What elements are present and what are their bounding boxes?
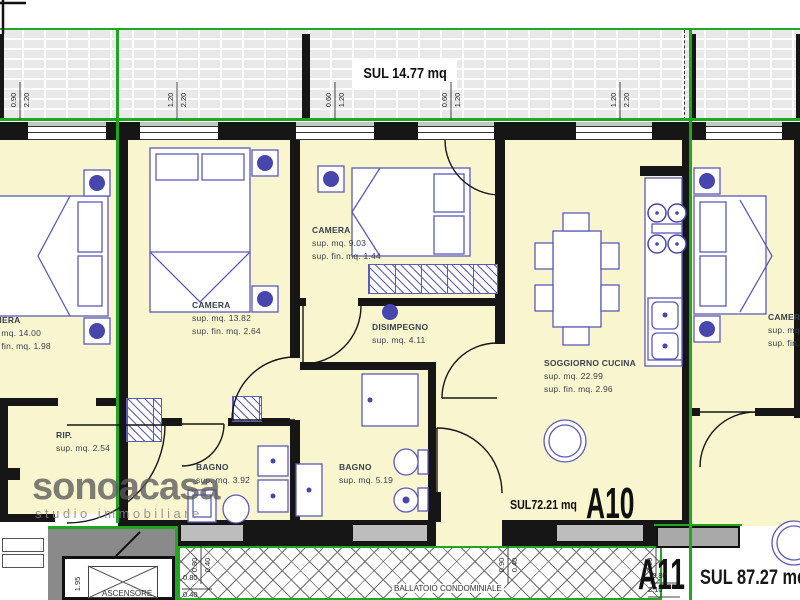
room-name: BAGNO	[339, 461, 393, 474]
burner-dot	[675, 211, 679, 215]
door-soggiorno	[442, 343, 497, 398]
knob	[271, 459, 276, 464]
toilet-tank	[418, 450, 428, 474]
watermark-tagline: studio immobiliare	[35, 506, 203, 521]
toilet	[394, 449, 418, 475]
lamp	[257, 155, 273, 171]
brace-mark	[116, 532, 140, 556]
dimension-label: 2.20	[623, 93, 631, 108]
room-label: CAMERAsup. mq. 9.03sup. fin. mq. 1.44	[312, 224, 381, 263]
knob	[271, 494, 276, 499]
watermark-brand: sonoacasa	[32, 468, 219, 506]
pillow	[78, 202, 102, 252]
room-label: CAMERAsup. mq. 13.82sup. fin. mq. 2.64	[192, 299, 261, 338]
room-name: CAMERA	[312, 224, 381, 237]
room-name: CAMERA	[0, 314, 51, 327]
room-label: DISIMPEGNOsup. mq. 4.11	[372, 321, 428, 347]
dimension-label: 1.20	[167, 93, 175, 108]
chair	[563, 213, 589, 231]
chair	[535, 243, 553, 269]
drain	[663, 313, 668, 318]
dimension-label: 0.90	[498, 558, 506, 573]
room-name: SOGGIORNO CUCINA	[544, 357, 636, 370]
lamp	[323, 171, 339, 187]
pillow	[434, 216, 464, 254]
room-label: CAMERAsup. mq. 14.00sup. fin. mq. 1.98	[0, 314, 51, 353]
pillow	[434, 174, 464, 212]
room-area-line: sup. mq. 22.99	[544, 370, 636, 383]
dimension-label: 1.95	[74, 577, 82, 592]
room-name: CAMERA	[768, 311, 800, 324]
ballatoio-label: BALLATOIO CONDOMINIALE	[392, 584, 504, 593]
pillow	[700, 202, 726, 252]
burner-dot	[655, 242, 659, 246]
chair	[563, 327, 589, 345]
room-label: SOGGIORNO CUCINAsup. mq. 22.99sup. fin. …	[544, 357, 636, 396]
lamp	[89, 175, 105, 191]
room-area-line: sup. mq. 4.11	[372, 334, 428, 347]
floor-plan-canvas: SUL 14.77 mq	[0, 0, 800, 600]
room-area-line: sup. fin. mq. 2.64	[192, 325, 261, 338]
pillow	[156, 154, 198, 180]
dimension-label: 0.60	[325, 93, 333, 108]
room-area-line: sup. mq. 2.54	[56, 442, 110, 455]
dimension-label: 0.40	[204, 558, 212, 573]
room-area-line: sup. fin. mq. 1.98	[0, 340, 51, 353]
knob	[368, 398, 373, 403]
bidet-tap	[418, 488, 428, 511]
pillow	[700, 256, 726, 306]
dimension-label: 2.10	[648, 586, 663, 594]
dimension-label: 0.40	[511, 558, 519, 573]
room-area-line: sup. fin.	[768, 337, 800, 350]
dimension-label: 0.60	[441, 93, 449, 108]
dimension-label: 2.20	[23, 93, 31, 108]
apartment-id-label: A10	[586, 482, 634, 526]
ascensore-label: ASCENSORE	[100, 589, 154, 598]
room-area-line: sup. fin. mq. 1.44	[312, 250, 381, 263]
room-label: CAMERAsup. mq.sup. fin.	[768, 311, 800, 350]
door-bagno1	[182, 424, 224, 466]
toilet	[223, 495, 249, 523]
door-camera2	[303, 306, 361, 364]
room-area-line: sup. mq. 14.00	[0, 327, 51, 340]
room-name: RIP.	[56, 429, 110, 442]
chair	[601, 285, 619, 311]
door-leaf	[433, 492, 441, 522]
room-label: BAGNOsup. mq. 5.19	[339, 461, 393, 487]
knob	[307, 488, 312, 493]
room-area-line: sup. mq. 9.03	[312, 237, 381, 250]
pillow	[78, 256, 102, 306]
dining-table	[553, 231, 601, 327]
dimension-label: 0.80	[652, 572, 667, 580]
drain	[663, 344, 668, 349]
burner-dot	[675, 242, 679, 246]
dimension-label: 1.20	[610, 93, 618, 108]
room-area-line: sup. mq. 13.82	[192, 312, 261, 325]
apartment-area-label: SUL72.21 mq	[510, 497, 577, 512]
room-area-line: sup. fin. mq. 2.96	[544, 383, 636, 396]
dimension-label: 0.90	[10, 93, 18, 108]
kitchen-cabinet	[640, 166, 684, 176]
bidet-drain	[403, 497, 410, 504]
room-name: CAMERA	[192, 299, 261, 312]
room-area-line: sup. mq.	[768, 324, 800, 337]
corner-mark	[0, 0, 26, 34]
dimension-label: 2.20	[180, 93, 188, 108]
lamp	[699, 173, 715, 189]
dimension-label: 1.20	[454, 93, 462, 108]
dimension-label: 0.80	[183, 574, 198, 582]
dimension-label: 0.80	[191, 558, 199, 573]
room-label: RIP.sup. mq. 2.54	[56, 429, 110, 455]
lamp	[89, 323, 105, 339]
burner-dot	[655, 211, 659, 215]
room-name: DISIMPEGNO	[372, 321, 428, 334]
door-entrance	[437, 428, 502, 493]
room-area-line: sup. mq. 5.19	[339, 474, 393, 487]
chair	[601, 243, 619, 269]
neighbor-area-label: SUL 87.27 mq	[700, 566, 800, 590]
lamp	[699, 321, 715, 337]
door-camera1	[232, 357, 295, 420]
lamp	[382, 304, 398, 320]
round-table	[544, 420, 586, 462]
pillow	[202, 154, 244, 180]
chair	[535, 285, 553, 311]
dimension-label: 1.20	[338, 93, 346, 108]
door-right-unit	[700, 412, 755, 467]
stove-panel	[652, 224, 682, 233]
dimension-label: 0.40	[183, 591, 198, 599]
